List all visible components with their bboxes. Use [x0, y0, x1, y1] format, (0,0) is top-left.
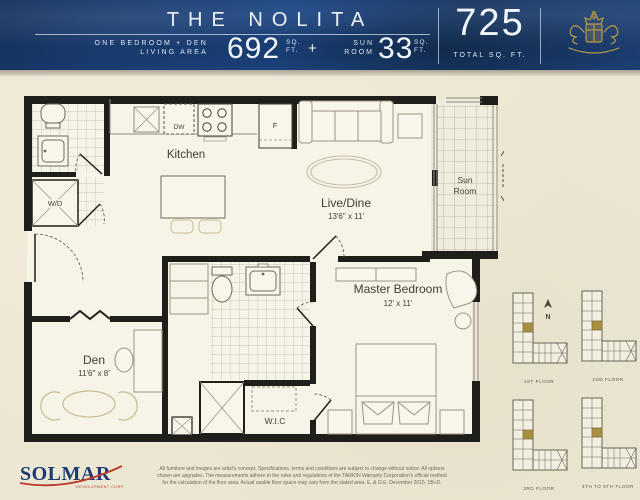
nightstand-right: [440, 410, 464, 434]
keyplan-1st-floor: 1ST FLOOR: [507, 291, 571, 384]
ottoman: [455, 313, 471, 329]
total-sqft: 725: [444, 2, 536, 45]
keyplan-label: 1ST FLOOR: [507, 379, 571, 384]
desk-chair: [115, 348, 133, 372]
total-sqft-label: TOTAL SQ. FT.: [440, 52, 540, 59]
vanity-sink: [38, 136, 68, 166]
nightstand-left: [328, 410, 352, 434]
sunroom-unit: SQ. FT.: [414, 39, 429, 55]
keyplan-label: 2ND FLOOR: [576, 377, 640, 382]
bed: [356, 344, 436, 434]
kitchen-room-label: Kitchen: [167, 149, 205, 161]
keyplan-drawing: [508, 291, 570, 373]
header-bottom-band: [0, 70, 640, 76]
svg-text:DW: DW: [174, 124, 186, 131]
wic-label: W.I.C: [265, 416, 286, 426]
header-vertical-divider: [438, 8, 439, 64]
sofa: [299, 101, 393, 143]
living-area-unit: SQ. FT.: [286, 39, 301, 55]
sunroom-window-arrows: [501, 145, 504, 207]
highlighted-unit: [523, 323, 533, 332]
sunroom-room-label-1: Sun: [457, 175, 472, 185]
side-table: [398, 114, 422, 138]
solmar-logo-text: SOLMAR: [20, 463, 111, 485]
den-room-label: Den: [83, 353, 105, 367]
disclaimer-text: All furniture and images are artist's co…: [122, 466, 482, 487]
livedine-room-label: Live/Dine: [321, 196, 371, 210]
solmar-logo-subtext: DEVELOPMENT CORP: [76, 485, 124, 489]
ensuite-sink: [246, 264, 280, 295]
unit-type-label: ONE BEDROOM + DEN LIVING AREA: [58, 39, 208, 57]
keyplan-label: 4TH TO 8TH FLOOR: [576, 484, 640, 489]
plus-sign: +: [308, 40, 317, 57]
keyplan-3rd-floor: 3RD FLOOR: [507, 398, 571, 491]
fridge: F: [259, 104, 292, 148]
header-vertical-divider-2: [540, 8, 541, 64]
crest-icon: [556, 8, 632, 62]
dishwasher: DW: [164, 104, 194, 134]
sunroom-sqft: 33: [378, 32, 413, 66]
keyplan-2nd-floor: 2ND FLOOR: [576, 289, 640, 382]
kitchen-sink: [134, 107, 159, 132]
keyplan-drawing: [577, 396, 639, 478]
floorplan-drawing: DW F Kitchen: [14, 84, 504, 454]
brochure-page: THE NOLITA ONE BEDROOM + DEN LIVING AREA…: [0, 0, 640, 500]
keyplan-4th-8th-floor: 4TH TO 8TH FLOOR: [576, 396, 640, 489]
sunroom-label: SUN ROOM: [328, 39, 374, 57]
livedine-dims-label: 13'6" x 11': [328, 212, 364, 221]
shower: [200, 382, 244, 434]
stove: [198, 104, 232, 141]
wd-label: W/D: [48, 199, 63, 208]
keyplan-drawing: [508, 398, 570, 480]
washer-dryer: W/D: [32, 180, 78, 226]
page-title: THE NOLITA: [110, 9, 430, 32]
ensuite-toilet: [212, 267, 232, 302]
wd-tiles: [78, 177, 104, 226]
master-room-label: Master Bedroom: [354, 282, 443, 296]
dresser: [336, 268, 416, 281]
keyplan-label: 3RD FLOOR: [507, 486, 571, 491]
living-area-sqft: 692: [227, 32, 280, 66]
highlighted-unit: [592, 428, 602, 437]
master-dims-label: 12' x 11': [384, 299, 413, 308]
solmar-logo: SOLMAR DEVELOPMENT CORP: [18, 459, 128, 496]
svg-text:F: F: [273, 121, 278, 130]
highlighted-unit: [523, 430, 533, 439]
master-window: [472, 299, 480, 384]
highlighted-unit: [592, 321, 602, 330]
sunroom-room-label-2: Room: [454, 186, 477, 196]
keyplan-drawing: [577, 289, 639, 371]
den-dims-label: 11'6" x 8': [78, 369, 110, 378]
header-banner: THE NOLITA ONE BEDROOM + DEN LIVING AREA…: [0, 0, 640, 70]
utility-cabinet: [172, 417, 192, 435]
